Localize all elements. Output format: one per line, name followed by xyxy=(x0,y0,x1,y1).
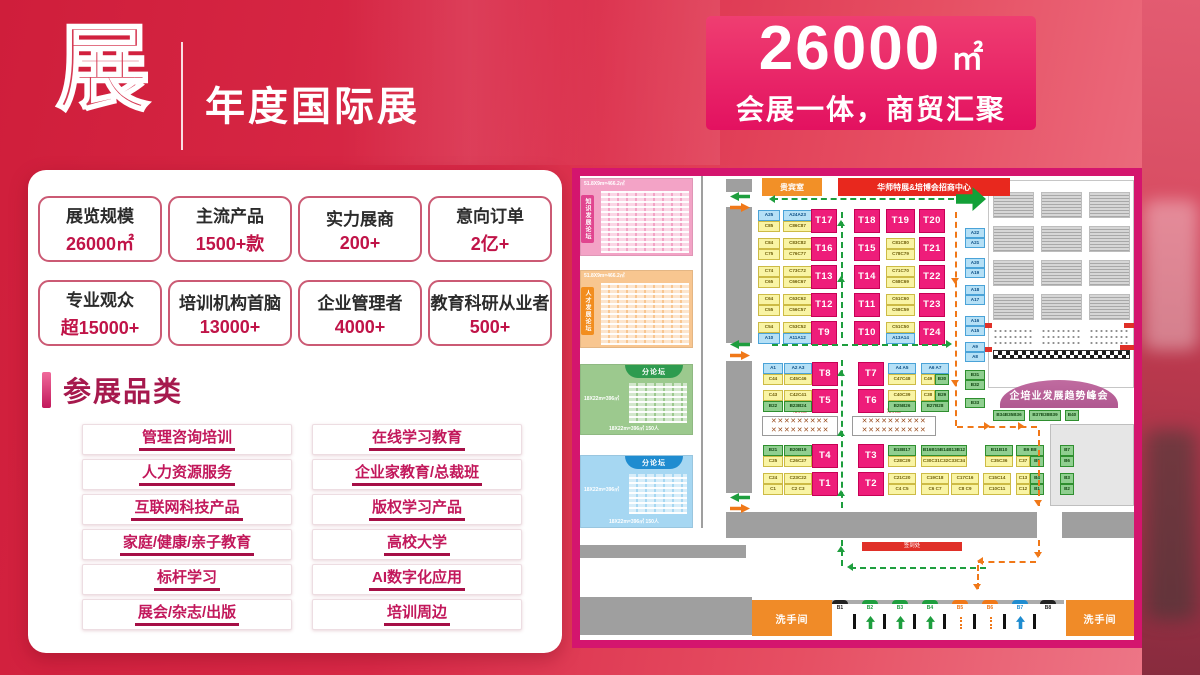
booth-C37: C37 xyxy=(1016,456,1030,467)
background-photo-highlight xyxy=(1144,200,1198,350)
seat-block xyxy=(1041,260,1082,286)
booth-C8-C9: C8 C9 xyxy=(951,484,979,495)
stat-title: 实力展商 xyxy=(326,205,394,230)
forum-room: 分论坛18X22m=396㎡18X22m=396㎡ 150人 xyxy=(580,364,693,435)
wall xyxy=(726,179,752,192)
booth-T21: T21 xyxy=(919,237,945,261)
booth-C42C41: C42C41 xyxy=(784,390,812,401)
wall xyxy=(580,545,746,558)
gate-label-B8: B8 xyxy=(1039,606,1057,612)
wall xyxy=(726,512,1037,538)
banner-slogan: 会展一体，商贸汇聚 xyxy=(736,88,1006,128)
category-label: AI数字化应用 xyxy=(369,569,465,591)
category-label: 标杆学习 xyxy=(154,569,220,591)
category-item: 人力资源服务 xyxy=(82,459,292,490)
negotiation-tables: ✕✕✕✕✕✕✕✕✕✕✕✕✕✕✕✕✕✕✕✕ xyxy=(852,416,936,436)
wall xyxy=(580,597,752,635)
negotiation-tables: ✕✕✕✕✕✕✕✕✕✕✕✕✕✕✕✕✕✕ xyxy=(762,416,838,436)
forum-seats xyxy=(629,474,687,514)
wall xyxy=(1062,512,1134,538)
route-arrowhead xyxy=(973,584,981,594)
booth-C12: C12 xyxy=(1016,484,1030,495)
gate-arrow-B7 xyxy=(1016,616,1025,629)
direction-arrow xyxy=(730,192,750,201)
stat-value: 13000+ xyxy=(200,317,261,338)
page-title: 年度国际展 xyxy=(205,74,420,132)
booth-B2: B2 xyxy=(1060,484,1074,495)
forum-room: 分论坛18X22m=396㎡18X22m=396㎡ 150人 xyxy=(580,455,693,528)
hq-office: 华师特展&培博会招商中心 xyxy=(838,178,1010,196)
booth-A10: A10 xyxy=(758,333,780,344)
booth-C81C80: C81C80 xyxy=(886,238,915,249)
booth-C28C29: C28C29 xyxy=(888,456,916,467)
wall xyxy=(701,176,703,528)
booth-T7: T7 xyxy=(858,362,884,386)
checkin-strip: 签到处 xyxy=(862,542,962,551)
category-item: 版权学习产品 xyxy=(312,494,522,525)
forum-room: 人才发展论坛51.8X9m=466.2㎡ xyxy=(580,270,693,348)
area-value: 26000 xyxy=(759,18,941,80)
seat-block xyxy=(993,294,1034,320)
stat-value: 1500+款 xyxy=(196,230,265,256)
route-arrowhead xyxy=(837,426,845,436)
area-unit: ㎡ xyxy=(951,42,983,74)
forum-room: 知识发展论坛51.8X9m=466.2㎡ xyxy=(580,178,693,256)
booth-A24A23: A24A23 xyxy=(783,210,812,221)
gate-label-B6: B6 xyxy=(981,606,999,612)
booth-C64: C64 xyxy=(758,294,780,305)
booth-A4-A5: A4 A5 xyxy=(888,363,916,374)
route-arrowhead xyxy=(946,340,956,348)
booth-A25: A25 xyxy=(758,210,780,221)
booth-T11: T11 xyxy=(854,293,880,317)
booth-C73C72: C73C72 xyxy=(783,266,812,277)
gate-label-B4: B4 xyxy=(921,606,939,612)
booth-C58C59: C58C59 xyxy=(886,305,915,316)
booth-C17C16: C17C16 xyxy=(951,473,979,484)
stat-box: 培训机构首脑13000+ xyxy=(168,280,292,346)
gate-label-B2: B2 xyxy=(861,606,879,612)
route-arrowhead xyxy=(1018,422,1028,430)
gate-cap-B7 xyxy=(1012,600,1028,604)
booth-B23B24: B23B24 xyxy=(784,401,812,412)
booth-C47C48: C47C48 xyxy=(888,374,916,385)
booth-B20B19: B20B19 xyxy=(784,445,812,456)
seat-block xyxy=(1041,192,1082,218)
booth-T5: T5 xyxy=(812,389,838,413)
forum-caption: 18X22m=396㎡ 150人 xyxy=(609,520,659,525)
seat-block xyxy=(993,260,1034,286)
booth-C61C60: C61C60 xyxy=(886,294,915,305)
category-label: 管理咨询培训 xyxy=(139,429,235,451)
booth-C40C39: C40C39 xyxy=(888,390,916,401)
route-arrowhead xyxy=(973,557,983,565)
booth-B7: B7 xyxy=(1060,445,1074,456)
background-photo-edge xyxy=(1142,0,1200,675)
poster: 展 年度国际展 26000 ㎡ 会展一体，商贸汇聚 展览规模26000㎡主流产品… xyxy=(0,0,1200,675)
seat-block xyxy=(1041,294,1082,320)
booth-B29: B29 xyxy=(935,390,949,401)
booth-T8: T8 xyxy=(812,362,838,386)
category-item: 企业家教育/总裁班 xyxy=(312,459,522,490)
booth-A8: A8 xyxy=(965,352,985,362)
turnstile xyxy=(1033,614,1036,629)
stat-title: 专业观众 xyxy=(66,286,134,311)
forum-caption: 51.8X9m=466.2㎡ xyxy=(584,182,625,187)
stat-box: 专业观众超15000+ xyxy=(38,280,162,346)
booth-T1: T1 xyxy=(812,472,838,496)
booth-A19: A19 xyxy=(965,268,985,278)
booth-A13A14: A13A14 xyxy=(886,333,915,344)
booth-A6-A7: A6 A7 xyxy=(921,363,949,374)
booth-B33: B33 xyxy=(965,398,985,408)
route-line xyxy=(978,561,1036,563)
table-row xyxy=(1089,328,1130,346)
booth-C71C70: C71C70 xyxy=(886,266,915,277)
background-photo-shadow xyxy=(1146,430,1196,620)
seat-block xyxy=(993,226,1034,252)
booth-A18: A18 xyxy=(965,285,985,295)
category-label: 高校大学 xyxy=(384,534,450,556)
route-line xyxy=(772,198,954,200)
route-arrowhead xyxy=(1034,552,1042,562)
booth-T24: T24 xyxy=(919,321,945,345)
category-item: 培训周边 xyxy=(312,599,522,630)
stat-value: 2亿+ xyxy=(471,230,510,256)
info-card: 展览规模26000㎡主流产品1500+款实力展商200+意向订单2亿+专业观众超… xyxy=(28,170,562,653)
booth-T3: T3 xyxy=(858,444,884,468)
booth-C45C46: C45C46 xyxy=(784,374,812,385)
route-line xyxy=(772,344,948,346)
category-label: 展会/杂志/出版 xyxy=(135,604,239,626)
booth-C1: C1 xyxy=(763,484,783,495)
category-heading: 参展品类 xyxy=(63,370,183,410)
booth-C2-C3: C2 C3 xyxy=(784,484,812,495)
gate-cap-B6 xyxy=(982,600,998,604)
booth-C55: C55 xyxy=(758,305,780,316)
booth-C43: C43 xyxy=(763,390,783,401)
turnstile xyxy=(913,614,916,629)
gate-label-B5: B5 xyxy=(951,606,969,612)
booth-T9: T9 xyxy=(811,321,837,345)
stat-value: 4000+ xyxy=(335,317,386,338)
route-line xyxy=(1038,430,1040,506)
gate-arrow-B3 xyxy=(896,616,905,629)
stat-box: 企业管理者4000+ xyxy=(298,280,422,346)
booth-T13: T13 xyxy=(811,265,837,289)
booth-C24: C24 xyxy=(763,473,783,484)
booth-C19C18: C19C18 xyxy=(921,473,949,484)
booth-C78C79: C78C79 xyxy=(886,249,915,260)
category-column-left: 管理咨询培训人力资源服务互联网科技产品家庭/健康/亲子教育标杆学习展会/杂志/出… xyxy=(82,424,292,634)
booth-C68C69: C68C69 xyxy=(886,277,915,288)
booth-C13: C13 xyxy=(1016,473,1030,484)
route-line xyxy=(955,212,957,426)
category-item: 互联网科技产品 xyxy=(82,494,292,525)
route-arrowhead xyxy=(837,366,845,376)
booth-T20: T20 xyxy=(919,209,945,233)
forum-tab-label: 人才发展论坛 xyxy=(581,287,594,335)
stat-box: 主流产品1500+款 xyxy=(168,196,292,262)
category-item: 在线学习教育 xyxy=(312,424,522,455)
category-label: 在线学习教育 xyxy=(369,429,465,451)
booth-C63C62: C63C62 xyxy=(783,294,812,305)
header-divider xyxy=(181,42,183,150)
booth-C30C31C32C33C34: C30C31C32C33C34 xyxy=(921,456,967,467)
stat-title: 企业管理者 xyxy=(318,289,403,314)
gate-cap-B1 xyxy=(832,600,848,604)
booth-T16: T16 xyxy=(811,237,837,261)
booth-B3: B3 xyxy=(1060,473,1074,484)
turnstile xyxy=(1003,614,1006,629)
booth-B21: B21 xyxy=(763,445,783,456)
seat-block xyxy=(1089,260,1130,286)
booth-B27B28: B27B28 xyxy=(921,401,949,412)
booth-T19: T19 xyxy=(886,209,915,233)
gate-dotted-route xyxy=(960,617,962,629)
gate-label-B7: B7 xyxy=(1011,606,1029,612)
booth-T12: T12 xyxy=(811,293,837,317)
booth-C26C27: C26C27 xyxy=(784,456,812,467)
category-item: AI数字化应用 xyxy=(312,564,522,595)
stat-title: 培训机构首脑 xyxy=(179,289,281,314)
booth-A16: A16 xyxy=(965,316,985,326)
booth-A9: A9 xyxy=(965,342,985,352)
stat-box: 教育科研从业者500+ xyxy=(428,280,552,346)
route-arrowhead xyxy=(837,272,845,282)
route-arrowhead xyxy=(1034,500,1042,510)
booth-B11B10: B11B10 xyxy=(985,445,1013,456)
seat-block xyxy=(1041,226,1082,252)
forum-caption: 18X22m=396㎡ xyxy=(584,488,619,493)
booth-C4-C5: C4 C5 xyxy=(888,484,916,495)
booth-C15C14: C15C14 xyxy=(983,473,1011,484)
route-arrowhead xyxy=(837,542,845,552)
booth-C86C87: C86C87 xyxy=(783,221,812,232)
booth-B18B17: B18B17 xyxy=(888,445,916,456)
turnstile xyxy=(883,614,886,629)
category-accent-bar xyxy=(42,372,51,408)
route-arrowhead xyxy=(951,380,959,390)
turnstile xyxy=(853,614,856,629)
booth-A20: A20 xyxy=(965,258,985,268)
booth-A22: A22 xyxy=(965,228,985,238)
booth-T4: T4 xyxy=(812,444,838,468)
category-label: 家庭/健康/亲子教育 xyxy=(120,534,254,556)
forum-arch-label: 分论坛 xyxy=(625,456,683,469)
forum-seats xyxy=(629,383,687,423)
forum-arch-label: 分论坛 xyxy=(625,365,683,378)
booth-C85: C85 xyxy=(758,221,780,232)
booth-B25B26: B25B26 xyxy=(888,401,916,412)
restroom: 洗手间 xyxy=(1066,600,1134,636)
booth-T15: T15 xyxy=(854,237,880,261)
booth-A15: A15 xyxy=(965,326,985,336)
wall xyxy=(726,207,752,343)
booth-B34B35B36: B34B35B36 xyxy=(993,410,1025,421)
stat-box: 意向订单2亿+ xyxy=(428,196,552,262)
wall xyxy=(726,361,752,493)
booth-C74: C74 xyxy=(758,266,780,277)
floorplan: 知识发展论坛51.8X9m=466.2㎡人才发展论坛51.8X9m=466.2㎡… xyxy=(572,168,1142,648)
category-label: 版权学习产品 xyxy=(369,499,465,521)
route-arrowhead xyxy=(837,216,845,226)
booth-T10: T10 xyxy=(854,321,880,345)
category-label: 互联网科技产品 xyxy=(131,499,242,521)
direction-arrow xyxy=(730,351,750,360)
booth-B16B15B14B13B12: B16B15B14B13B12 xyxy=(921,445,967,456)
booth-T18: T18 xyxy=(854,209,880,233)
stat-title: 展览规模 xyxy=(66,202,134,227)
booth-T2: T2 xyxy=(858,472,884,496)
logo-mark: 展 xyxy=(56,22,150,116)
area-banner: 26000 ㎡ 会展一体，商贸汇聚 xyxy=(706,16,1036,130)
booth-C49: C49 xyxy=(921,374,935,385)
forum-seats xyxy=(601,283,689,345)
booth-B30: B30 xyxy=(935,374,949,385)
route-arrowhead xyxy=(843,563,853,571)
booth-C44: C44 xyxy=(763,374,783,385)
gate-cap-B3 xyxy=(892,600,908,604)
category-item: 高校大学 xyxy=(312,529,522,560)
stat-box: 展览规模26000㎡ xyxy=(38,196,162,262)
gate-cap-B2 xyxy=(862,600,878,604)
stat-title: 主流产品 xyxy=(196,202,264,227)
seat-block xyxy=(1089,226,1130,252)
stats-grid: 展览规模26000㎡主流产品1500+款实力展商200+意向订单2亿+专业观众超… xyxy=(38,196,552,346)
category-item: 管理咨询培训 xyxy=(82,424,292,455)
table-row xyxy=(993,328,1034,346)
restroom: 洗手间 xyxy=(752,600,832,636)
booth-B1: B1 xyxy=(1030,484,1044,495)
gate-cap-B8 xyxy=(1040,600,1056,604)
booth-A2-A3: A2 A3 xyxy=(784,363,812,374)
booth-A17: A17 xyxy=(965,295,985,305)
booth-B31: B31 xyxy=(965,370,985,380)
booth-C21C20: C21C20 xyxy=(888,473,916,484)
booth-T17: T17 xyxy=(811,209,837,233)
booth-A21: A21 xyxy=(965,238,985,248)
booth-C25: C25 xyxy=(763,456,783,467)
booth-T6: T6 xyxy=(858,389,884,413)
booth-T14: T14 xyxy=(854,265,880,289)
booth-C76C77: C76C77 xyxy=(783,249,812,260)
booth-C65: C65 xyxy=(758,277,780,288)
stat-title: 意向订单 xyxy=(456,202,524,227)
gate-label-B1: B1 xyxy=(831,606,849,612)
booth-C54: C54 xyxy=(758,322,780,333)
booth-B40: B40 xyxy=(1065,410,1079,421)
booth-B22: B22 xyxy=(763,401,783,412)
booth-B6: B6 xyxy=(1060,456,1074,467)
category-item: 标杆学习 xyxy=(82,564,292,595)
stat-value: 超15000+ xyxy=(61,314,140,340)
stat-value: 500+ xyxy=(470,317,511,338)
gate-arrow-B4 xyxy=(926,616,935,629)
area-line: 26000 ㎡ xyxy=(759,18,983,80)
booth-C53C52: C53C52 xyxy=(783,322,812,333)
category-column-right: 在线学习教育企业家教育/总裁班版权学习产品高校大学AI数字化应用培训周边 xyxy=(312,424,522,634)
booth-A11A12: A11A12 xyxy=(783,333,812,344)
category-label: 企业家教育/总裁班 xyxy=(352,464,482,486)
forum-seats xyxy=(601,191,689,253)
booth-C23C22: C23C22 xyxy=(784,473,812,484)
route-arrowhead xyxy=(984,422,994,430)
category-header: 参展品类 xyxy=(42,370,183,410)
booth-C35C36: C35C36 xyxy=(985,456,1013,467)
stat-value: 26000㎡ xyxy=(66,230,134,256)
turnstile xyxy=(943,614,946,629)
booth-T22: T22 xyxy=(919,265,945,289)
route-arrowhead xyxy=(951,278,959,288)
direction-arrow xyxy=(730,493,750,502)
booth-A1: A1 xyxy=(763,363,783,374)
gate-label-B3: B3 xyxy=(891,606,909,612)
vip-room: 贵宾室 xyxy=(762,178,822,196)
booth-C10C11: C10C11 xyxy=(983,484,1011,495)
stage-edge-checker xyxy=(993,350,1130,359)
booth-C84: C84 xyxy=(758,238,780,249)
table-row xyxy=(1041,328,1082,346)
booth-B37B38B39: B37B38B39 xyxy=(1029,410,1061,421)
red-marker xyxy=(1120,345,1134,350)
seat-block xyxy=(1089,192,1130,218)
route-line xyxy=(850,567,986,569)
booth-T23: T23 xyxy=(919,293,945,317)
seat-block xyxy=(1089,294,1130,320)
background-streak xyxy=(560,0,720,165)
stat-title: 教育科研从业者 xyxy=(431,289,550,314)
booth-B4: B4 xyxy=(1030,473,1044,484)
booth-C75: C75 xyxy=(758,249,780,260)
booth-C51C50: C51C50 xyxy=(886,322,915,333)
stat-box: 实力展商200+ xyxy=(298,196,422,262)
forum-tab-label: 知识发展论坛 xyxy=(581,195,594,243)
booth-C56C57: C56C57 xyxy=(783,305,812,316)
booth-B32: B32 xyxy=(965,380,985,390)
forum-caption: 51.8X9m=466.2㎡ xyxy=(584,274,625,279)
category-item: 家庭/健康/亲子教育 xyxy=(82,529,292,560)
category-label: 人力资源服务 xyxy=(139,464,235,486)
booth-B5: B5 xyxy=(1030,456,1044,467)
booth-C38: C38 xyxy=(921,390,935,401)
category-item: 展会/杂志/出版 xyxy=(82,599,292,630)
gate-cap-B5 xyxy=(952,600,968,604)
booth-C66C67: C66C67 xyxy=(783,277,812,288)
turnstile xyxy=(973,614,976,629)
forum-caption: 18X22m=396㎡ xyxy=(584,397,619,402)
gate-cap-B4 xyxy=(922,600,938,604)
forum-caption: 18X22m=396㎡ 150人 xyxy=(609,427,659,432)
booth-C83C82: C83C82 xyxy=(783,238,812,249)
stat-value: 200+ xyxy=(340,233,381,254)
route-arrowhead xyxy=(765,195,775,203)
category-label: 培训周边 xyxy=(384,604,450,626)
category-columns: 管理咨询培训人力资源服务互联网科技产品家庭/健康/亲子教育标杆学习展会/杂志/出… xyxy=(82,424,522,634)
red-marker xyxy=(1124,323,1138,328)
gate-dotted-route xyxy=(990,617,992,629)
route-arrowhead xyxy=(837,486,845,496)
booth-C6-C7: C6 C7 xyxy=(921,484,949,495)
gate-arrow-B2 xyxy=(866,616,875,629)
